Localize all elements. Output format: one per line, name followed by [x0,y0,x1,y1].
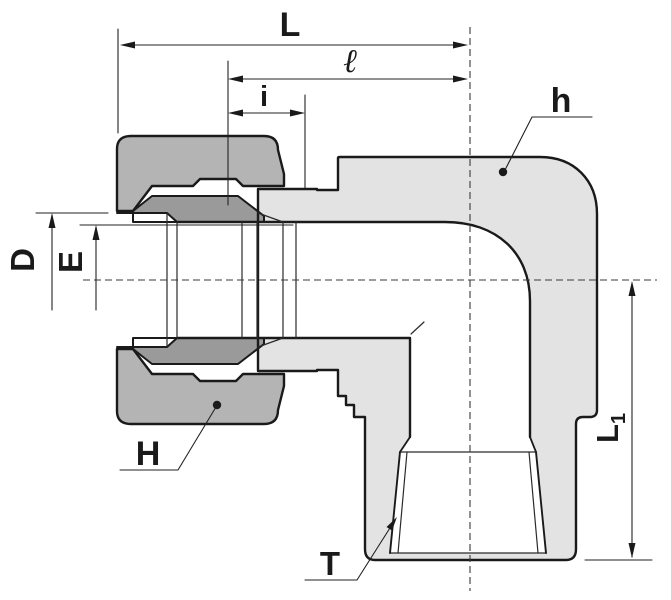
section-fills [117,136,597,560]
label-h: h [551,82,572,120]
label-T: T [320,545,340,582]
leader-dot-h [499,168,507,176]
drawing-canvas: L ℓ i D E h H T L1 [0,0,671,600]
arrow-L1-bottom [629,543,636,558]
arrow-i-right [290,110,305,117]
label-H: H [136,435,161,473]
label-L1-main: L [590,424,625,443]
label-E: E [52,251,89,273]
leader-dot-H [213,401,221,409]
arrow-D [49,213,56,228]
label-L1-sub: 1 [608,413,630,424]
label-i: i [260,81,268,113]
label-L1: L1 [590,413,630,443]
label-ell: ℓ [343,41,357,80]
label-L: L [280,6,301,44]
arrow-ell-left [228,76,243,83]
arrow-L-right [453,42,468,49]
arrow-i-left [228,110,243,117]
arrow-ell-right [453,76,468,83]
arrow-L-left [120,42,135,49]
arrow-L1-top [629,281,636,296]
arrow-E [93,225,100,240]
label-D: D [4,248,41,272]
fitting-section-drawing: L ℓ i D E h H T L1 [0,0,671,600]
